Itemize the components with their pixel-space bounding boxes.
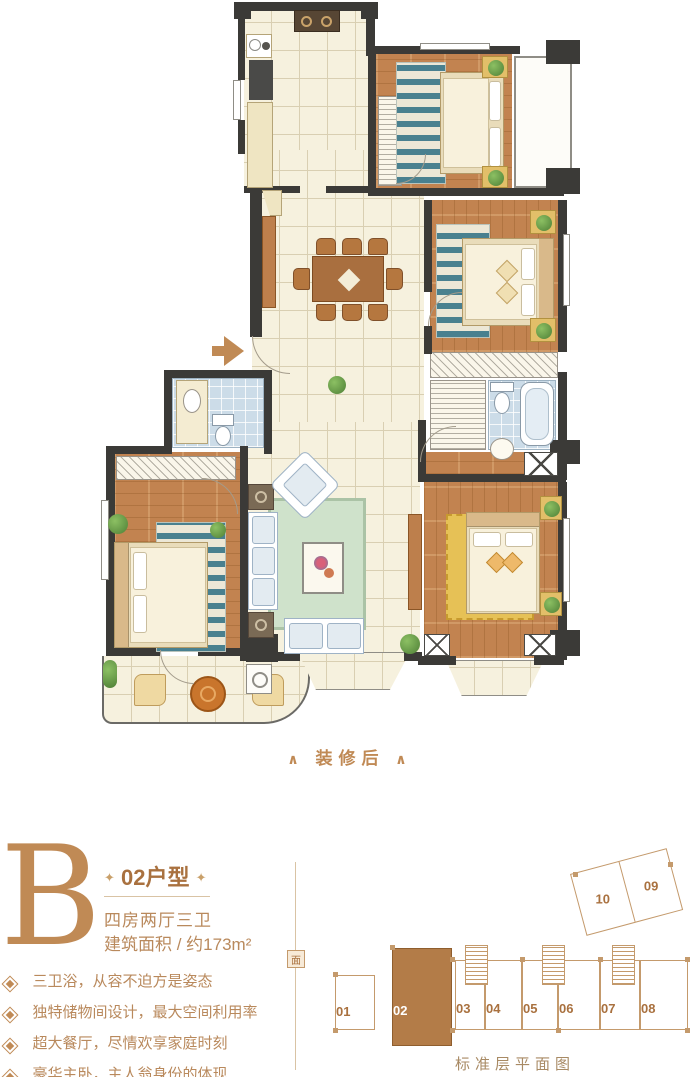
seal-character: 面 <box>291 956 301 967</box>
stair-core <box>542 945 565 985</box>
plant-icon <box>544 501 560 517</box>
bed <box>114 542 208 648</box>
column-marker <box>390 945 395 950</box>
feature-list: 三卫浴，从容不迫方是姿态 独特储物间设计，最大空间利用率 超大餐厅，尽情欢享家庭… <box>4 970 294 1077</box>
balcony-table <box>190 676 226 712</box>
burner-icon <box>301 16 312 27</box>
feature-item: 超大餐厅，尽情欢享家庭时刻 <box>4 1032 294 1050</box>
unit-number: 02 <box>393 1003 407 1018</box>
pillow <box>489 81 501 121</box>
window <box>563 518 570 602</box>
side-table <box>248 484 274 510</box>
pillow <box>133 552 147 590</box>
feature-text: 豪华主卧，主人翁身份的体现 <box>32 1066 227 1077</box>
nightstand <box>482 166 508 188</box>
closet-band <box>430 352 558 378</box>
sofa-cushion <box>252 578 275 606</box>
plant-icon <box>108 514 128 534</box>
diamond-bullet-icon <box>2 976 19 993</box>
flue-block <box>524 452 558 476</box>
entry-arrow-icon <box>224 336 244 366</box>
dining-chair <box>386 268 403 290</box>
toilet-bowl <box>215 426 231 446</box>
headboard <box>467 513 539 527</box>
window <box>563 234 570 306</box>
toilet <box>490 382 514 392</box>
wall-segment <box>424 326 432 354</box>
sofa-cushion <box>282 462 327 507</box>
unit-number: 04 <box>486 1001 500 1016</box>
nightstand <box>482 56 508 78</box>
after-label-text: 装修后 <box>316 749 385 768</box>
dining-chair <box>342 238 362 255</box>
wall-segment <box>418 656 456 665</box>
plant-icon <box>544 597 560 613</box>
wall-segment <box>238 11 245 80</box>
basin-icon <box>183 389 201 413</box>
feature-text: 三卫浴，从容不迫方是姿态 <box>32 973 212 990</box>
table-ring <box>200 686 216 702</box>
unit-number: 08 <box>641 1001 655 1016</box>
pillow <box>489 127 501 167</box>
diamond-bullet-icon <box>2 1038 19 1055</box>
dining-chair <box>293 268 310 290</box>
bed <box>440 72 504 174</box>
wall-segment <box>264 370 272 454</box>
plant-icon <box>536 215 552 231</box>
bed <box>462 238 554 326</box>
nightstand <box>540 592 562 616</box>
wall-segment <box>106 648 160 656</box>
headboard <box>539 239 553 325</box>
sofa-cushion <box>289 623 323 649</box>
chevron-up-icon: ∧ <box>395 751 412 767</box>
tv-cabinet <box>408 514 422 610</box>
sink-bowl-icon <box>262 42 270 50</box>
sofa-cushion <box>252 547 275 575</box>
dining-table <box>312 256 384 302</box>
plant-icon <box>536 323 552 339</box>
page-root: ∧ 装修后 ∧ B ✦ 02户型 ✦ 四房两厅三卫 建筑面积 / 约173m² … <box>0 0 700 1077</box>
wall-segment <box>164 370 266 378</box>
flower-icon <box>324 568 334 578</box>
unit-number: 10 <box>595 891 609 906</box>
bathtub <box>520 382 554 446</box>
toilet <box>212 414 234 426</box>
unit-letter: B <box>0 840 100 953</box>
bay-window-living <box>298 652 410 690</box>
decor-icon <box>255 491 267 503</box>
decor-icon <box>255 619 267 631</box>
column-marker <box>333 1028 338 1033</box>
unit-layout: 四房两厅三卫 <box>104 906 294 931</box>
side-table <box>248 612 274 638</box>
mattress <box>443 78 489 168</box>
dining-chair <box>316 238 336 255</box>
flue-block <box>424 634 450 656</box>
unit-number: 01 <box>336 1004 350 1019</box>
unit-number: 09 <box>643 878 657 893</box>
unit-number: 05 <box>523 1001 537 1016</box>
unit-number: 03 <box>456 1001 470 1016</box>
bed <box>466 512 540 614</box>
dining-chair <box>342 304 362 321</box>
column-marker <box>520 957 525 962</box>
wall-segment <box>164 370 172 454</box>
unit-area: 建筑面积 / 约173m² <box>104 930 300 955</box>
coffee-table <box>302 542 344 594</box>
burner-icon <box>321 16 332 27</box>
column-marker <box>668 862 673 867</box>
wall-segment <box>424 200 432 292</box>
unit-number: 07 <box>601 1001 615 1016</box>
keyplan-unit-04: 04 <box>485 960 522 1030</box>
wall-segment <box>534 656 564 665</box>
nightstand <box>540 496 562 520</box>
plant-icon <box>488 60 504 76</box>
table-centerpiece <box>338 269 361 292</box>
stove <box>294 10 340 32</box>
headboard <box>115 543 129 647</box>
wall-segment <box>546 40 580 64</box>
kitchen-sink <box>246 34 272 58</box>
column-marker <box>333 972 338 977</box>
floorplan: ∧ 装修后 ∧ <box>0 0 700 745</box>
wall-segment <box>240 446 248 654</box>
unit-title-row: ✦ 02户型 ✦ <box>104 860 274 892</box>
column-marker <box>598 957 603 962</box>
sofa <box>248 512 278 610</box>
tub-basin <box>525 388 549 440</box>
wall-segment <box>368 188 564 196</box>
diamond-bullet-icon <box>2 1069 19 1077</box>
fridge <box>249 60 273 100</box>
column-marker <box>685 1028 690 1033</box>
column-marker <box>685 957 690 962</box>
column-marker <box>556 1028 561 1033</box>
feature-text: 超大餐厅，尽情欢享家庭时刻 <box>32 1035 227 1052</box>
unit-number: 06 <box>559 1001 573 1016</box>
diamond-bullet-icon <box>2 1007 19 1024</box>
wardrobe-band <box>116 456 236 480</box>
stair-core <box>612 945 635 985</box>
keyplan-unit-08: 08 <box>640 960 688 1030</box>
balcony-chair <box>134 674 166 706</box>
keyplan: 10 09 01 02 03 04 05 06 07 08 <box>330 850 700 1077</box>
flue-block <box>524 634 556 656</box>
sofa-cushion <box>252 516 275 544</box>
window <box>101 500 109 580</box>
feature-item: 豪华主卧，主人翁身份的体现 <box>4 1063 294 1077</box>
plant-icon <box>488 170 504 186</box>
dining-chair <box>368 238 388 255</box>
seal-stamp: 面 <box>287 950 305 968</box>
plant-icon <box>103 660 117 688</box>
pillow <box>473 532 501 547</box>
window <box>233 80 241 120</box>
chevron-up-icon: ∧ <box>287 751 304 767</box>
sofa-cushion <box>327 623 361 649</box>
plant-icon <box>210 522 226 538</box>
nightstand <box>530 318 556 342</box>
sofa <box>284 618 364 654</box>
wall-segment <box>368 54 376 194</box>
unit-info-panel: B ✦ 02户型 ✦ 四房两厅三卫 建筑面积 / 约173m² 三卫浴，从容不迫… <box>0 840 300 1077</box>
wash-basin <box>490 438 514 460</box>
keyplan-angled-block: 10 09 <box>570 848 683 936</box>
pillow <box>505 532 533 547</box>
ornament-icon: ✦ <box>104 870 115 885</box>
stair-core <box>465 945 488 985</box>
keyplan-unit-02-highlighted: 02 <box>392 948 452 1046</box>
feature-item: 独特储物间设计，最大空间利用率 <box>4 1001 294 1019</box>
entry-arrow-icon <box>212 346 224 356</box>
potted-plant-icon <box>400 634 420 654</box>
pillow <box>521 284 535 316</box>
pillow <box>521 248 535 280</box>
column-marker <box>573 872 578 877</box>
potted-plant-icon <box>328 376 346 394</box>
sideboard <box>262 216 276 308</box>
bay-window-master <box>446 660 544 696</box>
drum-icon <box>252 672 268 688</box>
dining-chair <box>368 304 388 321</box>
window <box>420 43 490 50</box>
column-marker <box>450 1028 455 1033</box>
title-underline <box>104 896 210 897</box>
dining-chair <box>316 304 336 321</box>
wall-segment <box>326 186 372 193</box>
nightstand <box>530 210 556 234</box>
keyplan-unit-01: 01 <box>335 975 375 1030</box>
wall-segment <box>238 120 245 154</box>
feature-text: 独特储物间设计，最大空间利用率 <box>32 1004 257 1021</box>
pillow <box>133 595 147 633</box>
wall-segment <box>106 446 172 454</box>
ornament-icon: ✦ <box>196 870 207 885</box>
washing-machine <box>246 664 272 694</box>
toilet-bowl <box>494 392 510 414</box>
feature-item: 三卫浴，从容不迫方是姿态 <box>4 970 294 988</box>
unit-title: 02户型 <box>121 865 189 890</box>
vanity <box>176 380 208 444</box>
kitchen-counter <box>247 102 273 188</box>
after-decoration-label: ∧ 装修后 ∧ <box>0 744 700 769</box>
sink-bowl-icon <box>249 39 261 51</box>
column-marker <box>450 957 455 962</box>
keyplan-caption: 标准层平面图 <box>330 1053 700 1074</box>
